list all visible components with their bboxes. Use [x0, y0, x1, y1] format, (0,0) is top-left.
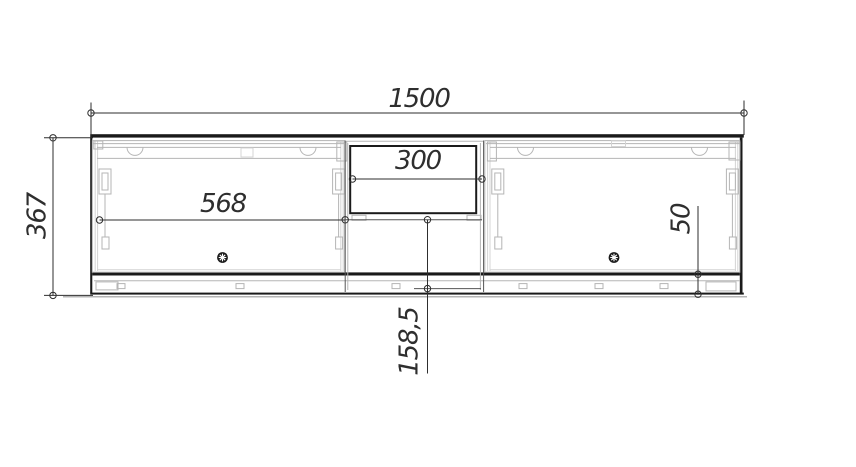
bottom-connector-mark: [660, 284, 668, 289]
bracket-slot: [729, 173, 735, 190]
dimension-bottom-offset: 50: [667, 203, 702, 297]
bottom-connector-mark: [392, 284, 400, 289]
dimension-total-height: 367: [23, 135, 94, 299]
bottom-connector-mark: [519, 284, 527, 289]
doors-bottom-edge: [92, 272, 740, 275]
hinge-cup: [518, 147, 534, 155]
bracket-foot: [336, 237, 343, 249]
lift-bracket: [726, 169, 738, 249]
dimension-label-bottom-offset: 50: [667, 203, 697, 234]
bottom-connector-mark: [595, 284, 603, 289]
right-door: [485, 141, 740, 273]
dimension-left-door-width: 568: [96, 189, 348, 223]
cabinet-top-edge: [90, 134, 744, 137]
drawing-canvas: 1500 367 568 300 158,5 50: [0, 0, 856, 467]
left-door-knob: [217, 252, 228, 263]
top-center-fitting: [241, 148, 253, 157]
bracket-foot: [102, 237, 109, 249]
right-door-knob: [609, 252, 620, 263]
corner-fitting: [729, 142, 740, 160]
bracket-slot: [102, 173, 108, 190]
bottom-right-bracket: [706, 282, 736, 291]
cabinet-front-view-drawing: 1500 367 568 300 158,5 50: [0, 0, 856, 467]
hinge-cup: [692, 147, 708, 155]
lift-bracket: [99, 169, 111, 249]
dimension-label-shelf-to-bottom: 158,5: [395, 307, 425, 376]
bracket-slot: [495, 173, 501, 190]
dimension-label-total-width: 1500: [388, 84, 450, 114]
hinge-cup: [127, 147, 143, 155]
dimension-total-width: 1500: [88, 84, 747, 137]
bracket-foot: [495, 237, 502, 249]
hinge-cup: [300, 147, 316, 155]
bottom-rail: [94, 281, 740, 291]
dimension-label-niche-width: 300: [395, 146, 442, 176]
lift-bracket: [492, 169, 504, 249]
dimension-label-left-door-width: 568: [200, 189, 247, 219]
dimension-niche-width: 300: [349, 146, 485, 182]
bottom-left-bracket: [96, 282, 118, 290]
dimension-shelf-to-bottom: 158,5: [395, 217, 431, 376]
dimension-label-total-height: 367: [23, 191, 53, 239]
bottom-connector-mark: [236, 284, 244, 289]
cabinet-bottom-edge: [90, 293, 744, 295]
